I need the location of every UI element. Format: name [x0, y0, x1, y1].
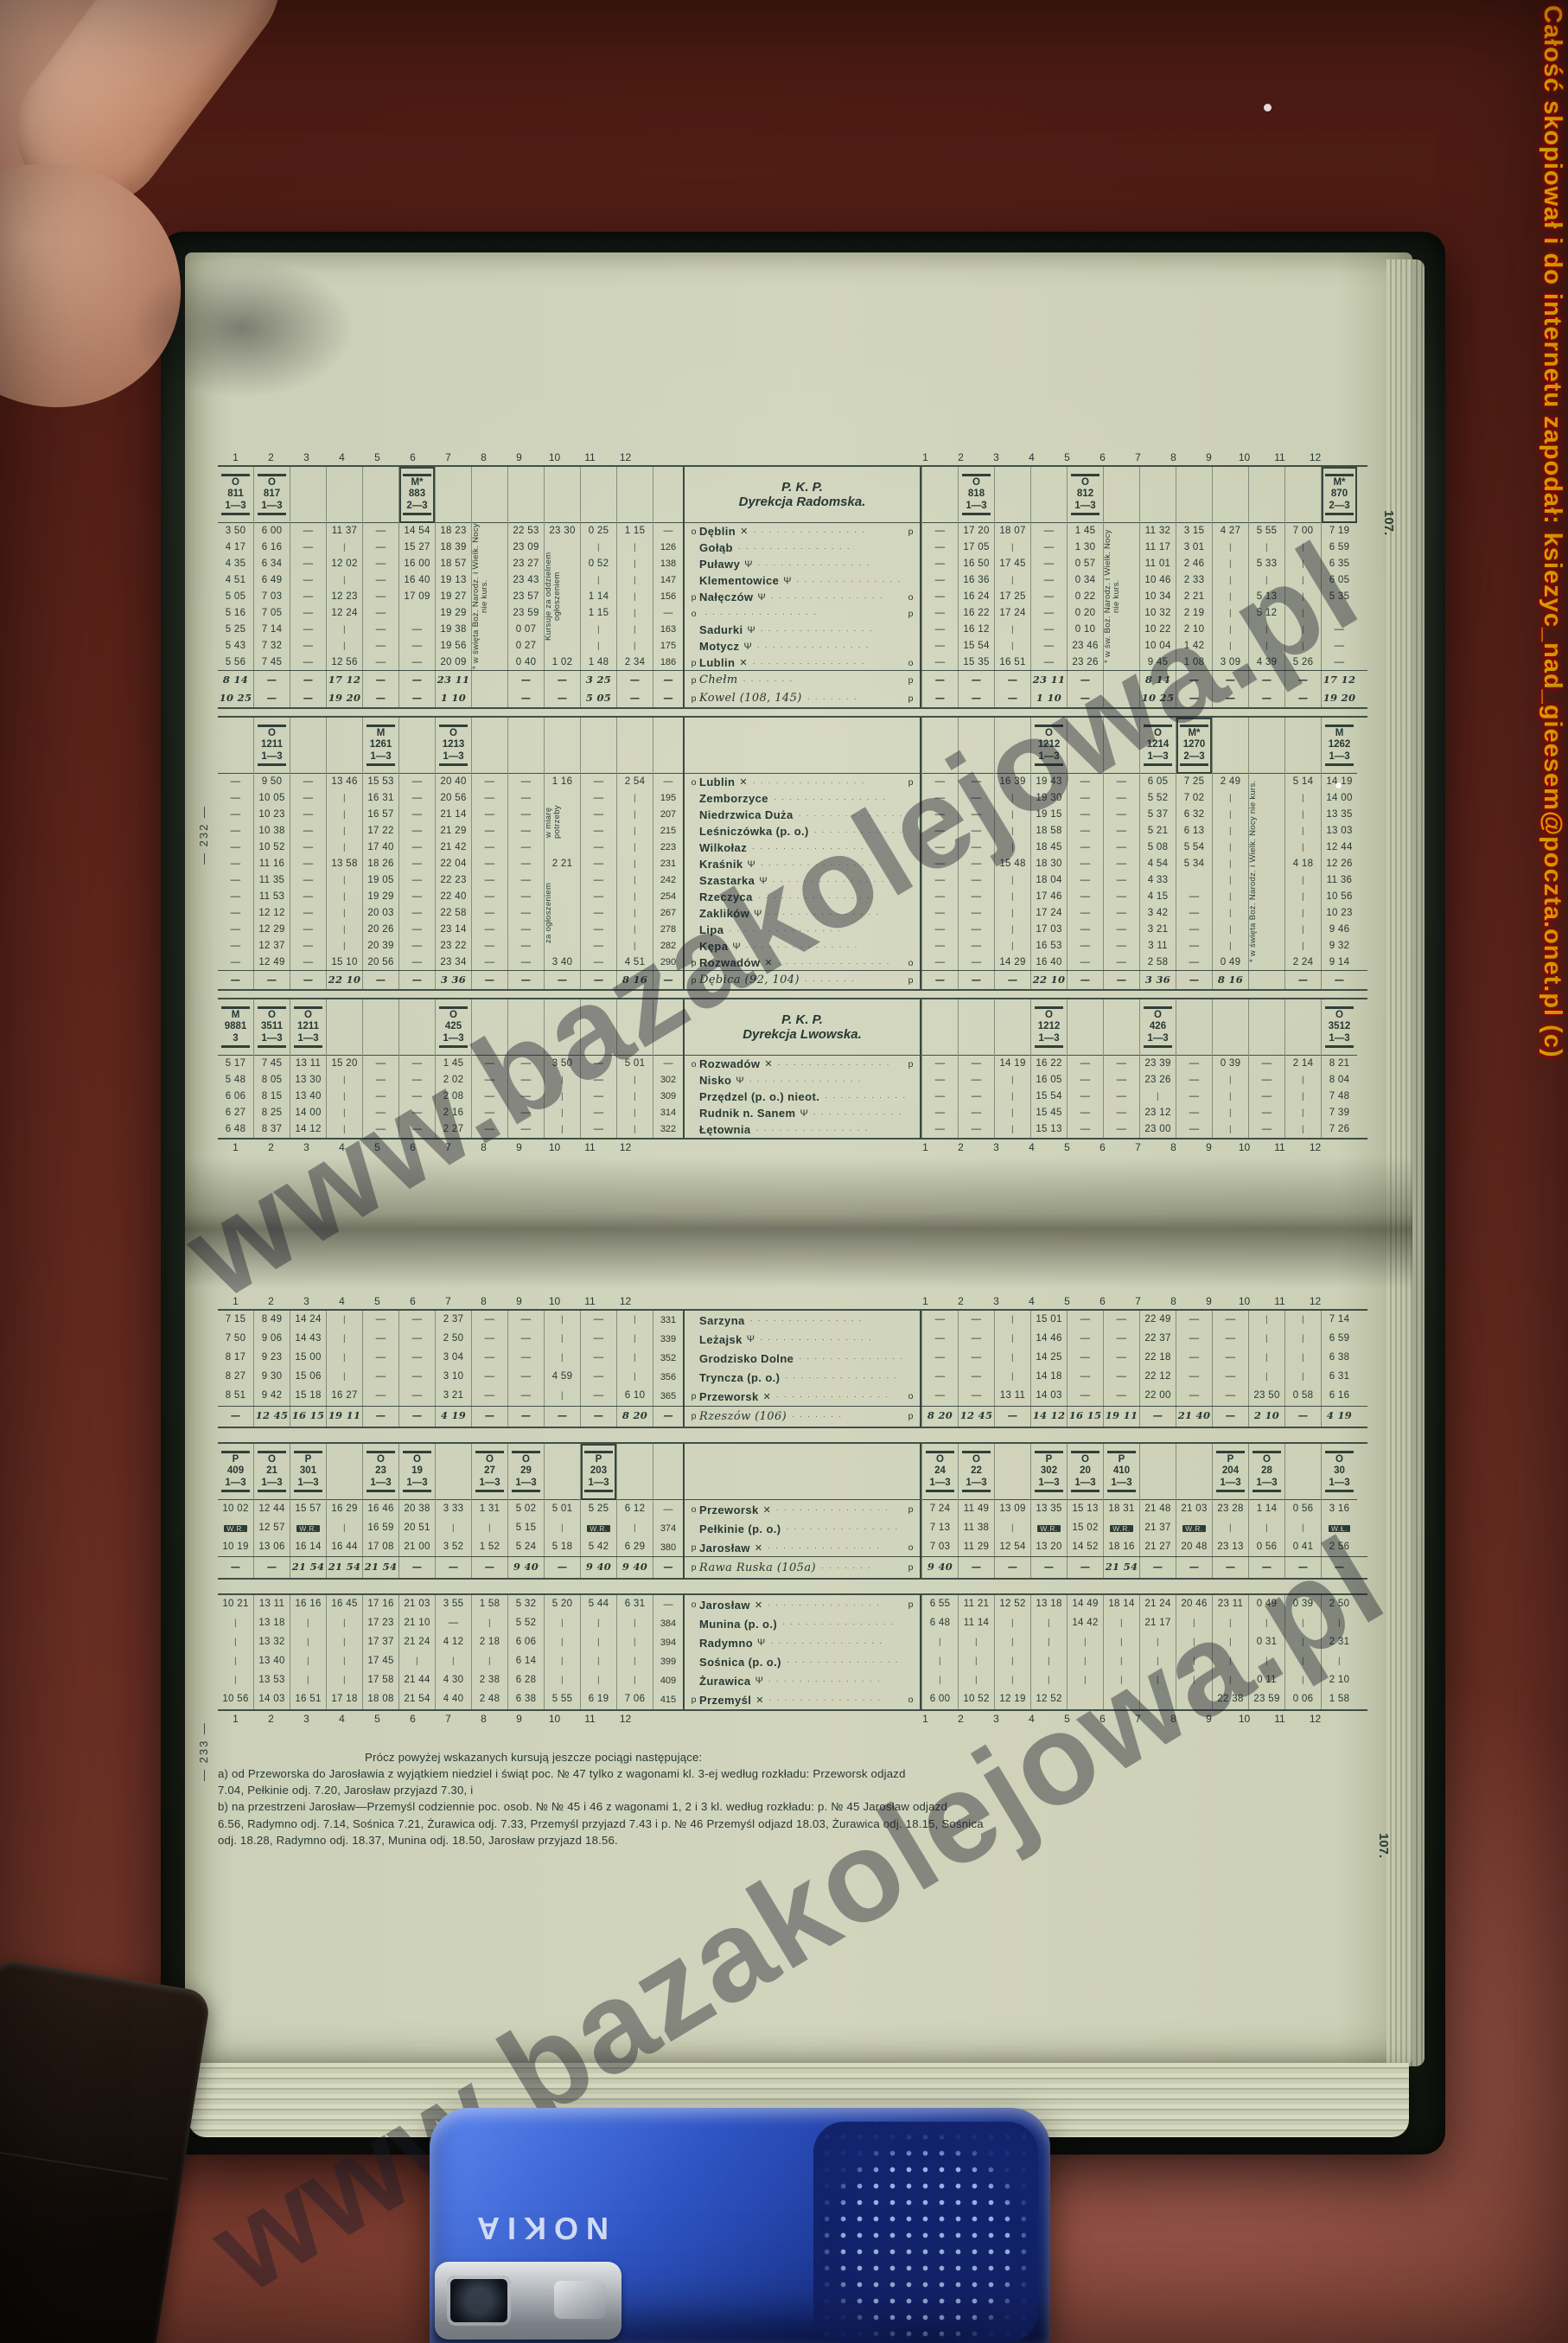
time-cell: | — [617, 823, 653, 840]
time-cell: 5 05 — [218, 589, 253, 605]
time-cell: — — [472, 856, 507, 872]
leader-dots: ··············· — [748, 527, 905, 536]
footnote-line: 6.56, Radymno odj. 7.14, Sośnica 7.21, Ż… — [218, 1816, 1367, 1832]
time-cell: 2 24 — [1285, 954, 1321, 971]
time-cell: | — [922, 1652, 958, 1671]
time-cell: 4 30 — [436, 1671, 471, 1690]
leader-dots: ··············· — [745, 1316, 905, 1325]
time-cell: 14 18 — [1031, 1368, 1067, 1387]
train-header-text: 883 — [409, 488, 425, 500]
train-header-text: O — [972, 1454, 980, 1465]
time-cell: — — [922, 605, 958, 622]
time-cell: 1 10 — [436, 689, 471, 707]
time-cell: | — [995, 638, 1030, 654]
train-column-left: 1 58|2 18|2 382 48 — [471, 1595, 507, 1709]
train-header-text: O — [1335, 1454, 1343, 1465]
time-cell: — — [1068, 840, 1103, 856]
train-header — [290, 467, 326, 523]
time-cell — [1104, 1690, 1139, 1709]
leader-dots: ··············· — [768, 795, 905, 803]
column-number: 3 — [978, 1293, 1014, 1309]
train-column-right: 18 14|||| — [1103, 1595, 1139, 1709]
station-name: Motycz — [699, 640, 739, 653]
leader-dots: ··············· — [794, 811, 905, 820]
time-cell: | — [327, 1330, 362, 1349]
time-cell: 16 31 — [363, 790, 398, 807]
time-cell: — — [1104, 823, 1139, 840]
station-name: Rzeczyca — [699, 891, 753, 903]
train-header-text: 24 — [934, 1465, 946, 1477]
time-cell: | — [1285, 556, 1321, 572]
time-cell: 18 08 — [363, 1690, 398, 1709]
time-cell: | — [290, 1614, 326, 1633]
header-rule — [221, 513, 250, 515]
time-cell: — — [472, 840, 507, 856]
time-cell: — — [1249, 1557, 1284, 1578]
station-column: oJarosław✕···············pMunina (p. o.)… — [683, 1595, 921, 1709]
time-cell: 5 55 — [545, 1690, 580, 1709]
train-column-right: O12141—36 055 525 375 215 084 544 334 15… — [1139, 718, 1176, 989]
train-header-text: P — [1119, 1454, 1125, 1465]
time-cell: — — [1176, 922, 1212, 938]
train-column-left: 6 12|6 299 40 — [616, 1444, 653, 1578]
train-header-text: 1—3 — [1038, 751, 1059, 763]
train-column-right: O4261—323 3923 26|23 1223 00 — [1139, 999, 1176, 1138]
time-cell: — — [399, 872, 435, 889]
time-cell: | — [472, 1519, 507, 1538]
time-cell: — — [959, 1387, 994, 1406]
time-cell: — — [508, 1406, 544, 1427]
time-cell: — — [363, 572, 398, 589]
time-cell: 20 48 — [1176, 1538, 1212, 1557]
train-column-left: ||||6 108 20 — [616, 1311, 653, 1427]
time-cell: | — [617, 539, 653, 556]
time-cell: — — [290, 539, 326, 556]
time-cell: — — [1213, 1349, 1248, 1368]
train-column-left: ————————————— — [290, 718, 326, 989]
time-cell: — — [1104, 938, 1139, 954]
time-cell: — — [1176, 1330, 1212, 1349]
train-column-left: 11 37|12 02|12 2312 24||12 5617 1219 20 — [326, 467, 362, 707]
station-row: pJarosław✕···············o — [685, 1538, 920, 1557]
header-rule — [221, 1045, 250, 1048]
train-header: O4251—3 — [436, 999, 471, 1056]
time-cell: 17 58 — [363, 1671, 398, 1690]
time-cell: 13 40 — [290, 1089, 326, 1105]
time-cell: — — [1322, 1557, 1357, 1578]
station-symbol: Ψ — [748, 859, 755, 870]
train-header — [1068, 718, 1103, 774]
time-cell: | — [1213, 1072, 1248, 1089]
train-column-left: 13 46||||13 58|||||15 1022 10 — [326, 718, 362, 989]
train-header — [1140, 467, 1176, 523]
train-header: O211—3 — [254, 1444, 290, 1500]
train-column-left: 7 157 508 178 278 51— — [218, 1311, 253, 1427]
time-cell: 10 56 — [1322, 889, 1357, 905]
time-cell: — — [508, 1368, 544, 1387]
leader-dots: ··············· — [755, 626, 905, 635]
time-cell: | — [1213, 638, 1248, 654]
time-cell: — — [1068, 922, 1103, 938]
time-cell: 21 54 — [363, 1557, 398, 1578]
time-cell: — — [581, 938, 616, 954]
leather-wallet — [0, 1958, 212, 2343]
time-cell: 7 24 — [922, 1500, 958, 1519]
time-cell: — — [922, 1330, 958, 1349]
train-header-text: 3511 — [261, 1021, 283, 1032]
vertical-note: za ogłoszeniem — [545, 871, 580, 954]
connection-separator — [218, 670, 1367, 671]
timetable-page-bottom: 1234567891011121234567891011127 157 508 … — [218, 1293, 1367, 1848]
train-header — [1285, 718, 1321, 774]
train-header — [508, 999, 544, 1056]
time-cell: — — [1068, 1387, 1103, 1406]
column-number: 1 — [908, 1140, 943, 1155]
leader-dots: ··············· — [755, 860, 905, 869]
train-column-left: 17 1617 2317 3717 4517 5818 08 — [362, 1595, 398, 1709]
time-cell: | — [617, 1089, 653, 1105]
column-number: 4 — [1014, 1293, 1049, 1309]
time-cell: — — [472, 1056, 507, 1072]
leader-dots: ··············· — [780, 1373, 905, 1382]
time-cell: | — [327, 1349, 362, 1368]
train-column-right: 0 39||||0 06 — [1284, 1595, 1321, 1709]
time-cell: 6 00 — [922, 1690, 958, 1709]
station-symbol: Ψ — [747, 1334, 755, 1344]
time-cell: W.R. — [581, 1519, 616, 1538]
time-cell: — — [1104, 1368, 1139, 1387]
time-cell: — — [581, 889, 616, 905]
train-header-text: 870 — [1331, 488, 1348, 500]
station-name: Przeworsk — [699, 1503, 759, 1516]
time-cell: — — [1068, 1330, 1103, 1349]
column-number: 7 — [430, 1293, 466, 1309]
time-cell: | — [1213, 1671, 1248, 1690]
time-cell: 6 06 — [508, 1633, 544, 1652]
time-cell: 21 10 — [399, 1614, 435, 1633]
time-cell: — — [922, 971, 958, 989]
time-cell: — — [959, 872, 994, 889]
train-header-text: 1—3 — [1038, 1033, 1059, 1044]
time-cell: 13 18 — [254, 1614, 290, 1633]
train-column-right: 13 09|12 54— — [994, 1444, 1030, 1578]
train-header-text: P — [596, 1454, 602, 1465]
time-cell: | — [1213, 1614, 1248, 1633]
time-cell: 17 37 — [363, 1633, 398, 1652]
time-cell: — — [399, 856, 435, 872]
train-column-right: 20 46|||| — [1176, 1595, 1212, 1709]
time-cell: | — [1249, 1519, 1284, 1538]
time-cell: — — [508, 807, 544, 823]
time-cell: — — [399, 671, 435, 689]
time-cell: — — [218, 1557, 253, 1578]
train-header — [1176, 467, 1212, 523]
time-cell: 19 05 — [363, 872, 398, 889]
time-cell: 22 04 — [436, 856, 471, 872]
time-cell: | — [617, 556, 653, 572]
time-cell: — — [995, 689, 1030, 707]
time-cell: 2 10 — [1322, 1671, 1357, 1690]
train-header: M12621—3 — [1322, 718, 1357, 774]
train-header-text: O — [1335, 1010, 1343, 1021]
time-cell: — — [922, 1311, 958, 1330]
leader-dots: ··············· — [752, 642, 905, 651]
time-cell: 3 33 — [436, 1500, 471, 1519]
time-cell: — — [959, 823, 994, 840]
time-cell: — — [399, 938, 435, 954]
time-cell: — — [922, 572, 958, 589]
time-cell — [472, 671, 507, 689]
time-cell: 3 55 — [436, 1595, 471, 1614]
time-cell: 7 14 — [254, 622, 290, 638]
time-cell: — — [1176, 905, 1212, 922]
train-header: P2031—3 — [581, 1444, 616, 1500]
time-cell: | — [218, 1614, 253, 1633]
train-header: P4101—3 — [1104, 1444, 1139, 1500]
station-row: Łętownia··············· — [685, 1121, 920, 1138]
time-cell: 19 43 — [1031, 774, 1067, 790]
train-header-text: 1—3 — [966, 1478, 986, 1489]
timetable-block: 123456789101112123456789101112O8111—33 5… — [218, 450, 1367, 709]
time-cell: 9 14 — [1322, 954, 1357, 971]
station-name: Puławy — [699, 558, 740, 571]
time-cell: 7 03 — [922, 1538, 958, 1557]
time-cell: | — [327, 1368, 362, 1387]
station-stop-mark: p — [905, 975, 916, 986]
time-cell: — — [1213, 1557, 1248, 1578]
time-cell: | — [545, 1633, 580, 1652]
station-row: Pełkinie (p. o.)··············· — [685, 1519, 920, 1538]
time-cell: | — [218, 1652, 253, 1671]
train-header-text: 1270 — [1183, 739, 1206, 750]
time-cell: 4 33 — [1140, 872, 1176, 889]
time-cell: — — [363, 1330, 398, 1349]
time-cell: 16 57 — [363, 807, 398, 823]
station-row: SadurkiΨ··············· — [685, 622, 920, 638]
header-rule — [1035, 763, 1063, 766]
train-column-left: O4251—31 452 022 082 162 27 — [435, 999, 471, 1138]
time-cell: — — [1140, 1557, 1176, 1578]
time-cell: 0 41 — [1285, 1538, 1321, 1557]
time-cell: — — [959, 1072, 994, 1089]
time-cell: — — [922, 905, 958, 922]
train-column-right: 0 56|0 41— — [1284, 1444, 1321, 1578]
time-cell: 242 — [653, 872, 683, 889]
train-header-text: 302 — [1041, 1465, 1057, 1477]
time-cell: 3 09 — [1213, 654, 1248, 671]
time-cell: 5 44 — [581, 1595, 616, 1614]
train-header-text: 1—3 — [929, 1478, 950, 1489]
train-header-text: P — [1227, 1454, 1234, 1465]
time-cell: — — [399, 922, 435, 938]
time-cell: 163 — [653, 622, 683, 638]
time-cell: | — [545, 1614, 580, 1633]
time-cell: 16 50 — [959, 556, 994, 572]
column-number: 3 — [289, 1140, 324, 1155]
header-rule — [403, 513, 431, 515]
time-cell: | — [327, 790, 362, 807]
time-cell: | — [327, 938, 362, 954]
time-cell: — — [1176, 1121, 1212, 1138]
time-cell: — — [508, 1072, 544, 1089]
station-name: Rozwadów — [699, 1057, 760, 1070]
time-cell: 5 05 — [581, 689, 616, 707]
time-cell: 5 17 — [218, 1056, 253, 1072]
time-cell: — — [363, 1349, 398, 1368]
time-cell: 22 10 — [327, 971, 362, 989]
vertical-note: w miarę potrzeby — [545, 789, 580, 855]
train-column-right: ——————————— — [921, 467, 958, 707]
spacer — [643, 1140, 672, 1155]
time-cell: — — [959, 1311, 994, 1330]
time-cell: | — [1213, 807, 1248, 823]
time-cell: 23 14 — [436, 922, 471, 938]
station-stop-mark: p — [688, 1542, 699, 1553]
station-row: Tryncza (p. o.)··············· — [685, 1368, 920, 1387]
time-cell: — — [1068, 1368, 1103, 1387]
time-cell: 15 20 — [327, 1056, 362, 1072]
station-row: MotyczΨ··············· — [685, 638, 920, 654]
train-header-text: 21 — [266, 1465, 277, 1477]
time-cell: | — [1104, 1614, 1139, 1633]
station-row: KlementowiceΨ··············· — [685, 572, 920, 589]
station-symbol: Ψ — [759, 876, 767, 886]
header-rule — [926, 1451, 954, 1453]
station-stop-mark: p — [688, 1391, 699, 1401]
time-cell: | — [995, 572, 1030, 589]
time-cell: 2 31 — [1322, 1633, 1357, 1652]
time-cell: | — [995, 1614, 1030, 1633]
time-cell: 15 13 — [1031, 1121, 1067, 1138]
time-cell: 10 46 — [1140, 572, 1176, 589]
time-cell: — — [254, 971, 290, 989]
timetable-block: 1234567891011121234567891011127 157 508 … — [218, 1293, 1367, 1428]
train-column-right: —————21 40 — [1176, 1311, 1212, 1427]
time-cell: 13 03 — [1322, 823, 1357, 840]
time-cell: — — [1104, 774, 1139, 790]
train-column-left: 5 20||||5 55 — [544, 1595, 580, 1709]
time-cell: | — [1140, 1089, 1176, 1105]
train-column-left: 10 21||||10 56 — [218, 1595, 253, 1709]
time-cell: 6 27 — [218, 1105, 253, 1121]
time-cell: — — [218, 823, 253, 840]
header-rule — [1216, 1490, 1245, 1492]
time-cell: 7 14 — [1322, 1311, 1357, 1330]
time-cell: 5 52 — [1140, 790, 1176, 807]
train-column-right: O221—311 4911 3811 29— — [958, 1444, 994, 1578]
time-cell: 11 37 — [327, 523, 362, 539]
train-column-left: ————————————— — [398, 718, 435, 989]
column-numbers-row: 123456789101112123456789101112 — [218, 1140, 1367, 1155]
time-cell: 5 48 — [218, 1072, 253, 1089]
time-cell: | — [959, 1633, 994, 1652]
train-header-text: O — [232, 477, 239, 488]
time-cell: 12 23 — [327, 589, 362, 605]
train-column-left: 21 0321 1021 24|21 4421 54 — [398, 1595, 435, 1709]
train-header-text: 812 — [1077, 488, 1093, 500]
column-number: 4 — [1014, 1711, 1049, 1727]
time-cell: — — [581, 1330, 616, 1349]
train-column-right: ————— — [1103, 999, 1139, 1138]
time-cell: — — [545, 1406, 580, 1427]
station-row: pPrzeworsk✕···············o — [685, 1387, 920, 1406]
train-header — [1285, 1444, 1321, 1500]
connection-station-name: Kowel (108, 145) — [699, 692, 802, 705]
time-cell: 14 29 — [995, 954, 1030, 971]
nokia-phone: NOKIA — [430, 2108, 1050, 2343]
train-header-text: O — [486, 1454, 494, 1465]
time-cell: 12 12 — [254, 905, 290, 922]
train-column-left: 16 16||||16 51 — [290, 1595, 326, 1709]
time-cell: 23 27 — [508, 556, 544, 572]
train-header-text: 1211 — [261, 739, 283, 750]
time-cell: 5 12 — [1249, 605, 1284, 622]
column-number: 4 — [324, 1140, 360, 1155]
time-cell: — — [581, 1072, 616, 1089]
time-cell: — — [1068, 790, 1103, 807]
train-column-right: 2 50|2 31|2 101 58 — [1321, 1595, 1357, 1709]
time-cell: | — [1249, 1311, 1284, 1330]
time-cell: 17 09 — [399, 589, 435, 605]
time-cell: 3 16 — [1322, 1500, 1357, 1519]
time-cell: 8 20 — [617, 1406, 653, 1427]
column-number: 8 — [1156, 1140, 1191, 1155]
time-cell: | — [922, 1671, 958, 1690]
phone-camera-lens — [447, 2276, 511, 2326]
time-cell: — — [581, 954, 616, 971]
train-header — [472, 467, 507, 523]
time-cell: — — [290, 790, 326, 807]
time-cell: | — [617, 638, 653, 654]
time-cell: 2 16 — [436, 1105, 471, 1121]
time-cell: 17 08 — [363, 1538, 398, 1557]
time-cell: 0 31 — [1249, 1633, 1284, 1652]
station-stop-mark: p — [688, 658, 699, 668]
time-cell: 223 — [653, 840, 683, 856]
time-cell: 15 48 — [995, 856, 1030, 872]
time-cell: 5 42 — [581, 1538, 616, 1557]
time-cell: 17 46 — [1031, 889, 1067, 905]
time-cell: 21 40 — [1176, 1406, 1212, 1427]
time-cell: — — [290, 774, 326, 790]
time-cell: — — [363, 1105, 398, 1121]
time-cell: — — [581, 790, 616, 807]
time-cell: 1 48 — [581, 654, 616, 671]
time-cell: — — [399, 1311, 435, 1330]
header-rule — [1325, 1451, 1354, 1453]
time-cell: — — [581, 1056, 616, 1072]
train-header-text: O — [304, 1010, 312, 1021]
column-number: 4 — [324, 1293, 360, 1309]
column-number: 12 — [1297, 1140, 1333, 1155]
train-header: O8121—3 — [1068, 467, 1103, 523]
time-cell: 22 49 — [1140, 1311, 1176, 1330]
header-rule — [475, 1490, 504, 1492]
time-cell: — — [508, 1089, 544, 1105]
time-cell: 5 08 — [1140, 840, 1176, 856]
header-rule — [403, 474, 431, 476]
train-column-left: |||4 59|— — [544, 1311, 580, 1427]
train-column-left: M12611—315 5316 3116 5717 2217 4018 2619… — [362, 718, 398, 989]
column-number: 5 — [1049, 1140, 1085, 1155]
train-header-text: M — [377, 728, 386, 739]
time-cell: | — [995, 840, 1030, 856]
time-cell: 22 00 — [1140, 1387, 1176, 1406]
time-cell: — — [472, 872, 507, 889]
vertical-note: * w św. Boż. Narodz. i Wielk. Nocy nie k… — [1104, 522, 1139, 670]
train-header: O12111—3 — [290, 999, 326, 1056]
train-column-right: M*12702—37 257 026 326 135 545 34—————— — [1176, 718, 1212, 989]
